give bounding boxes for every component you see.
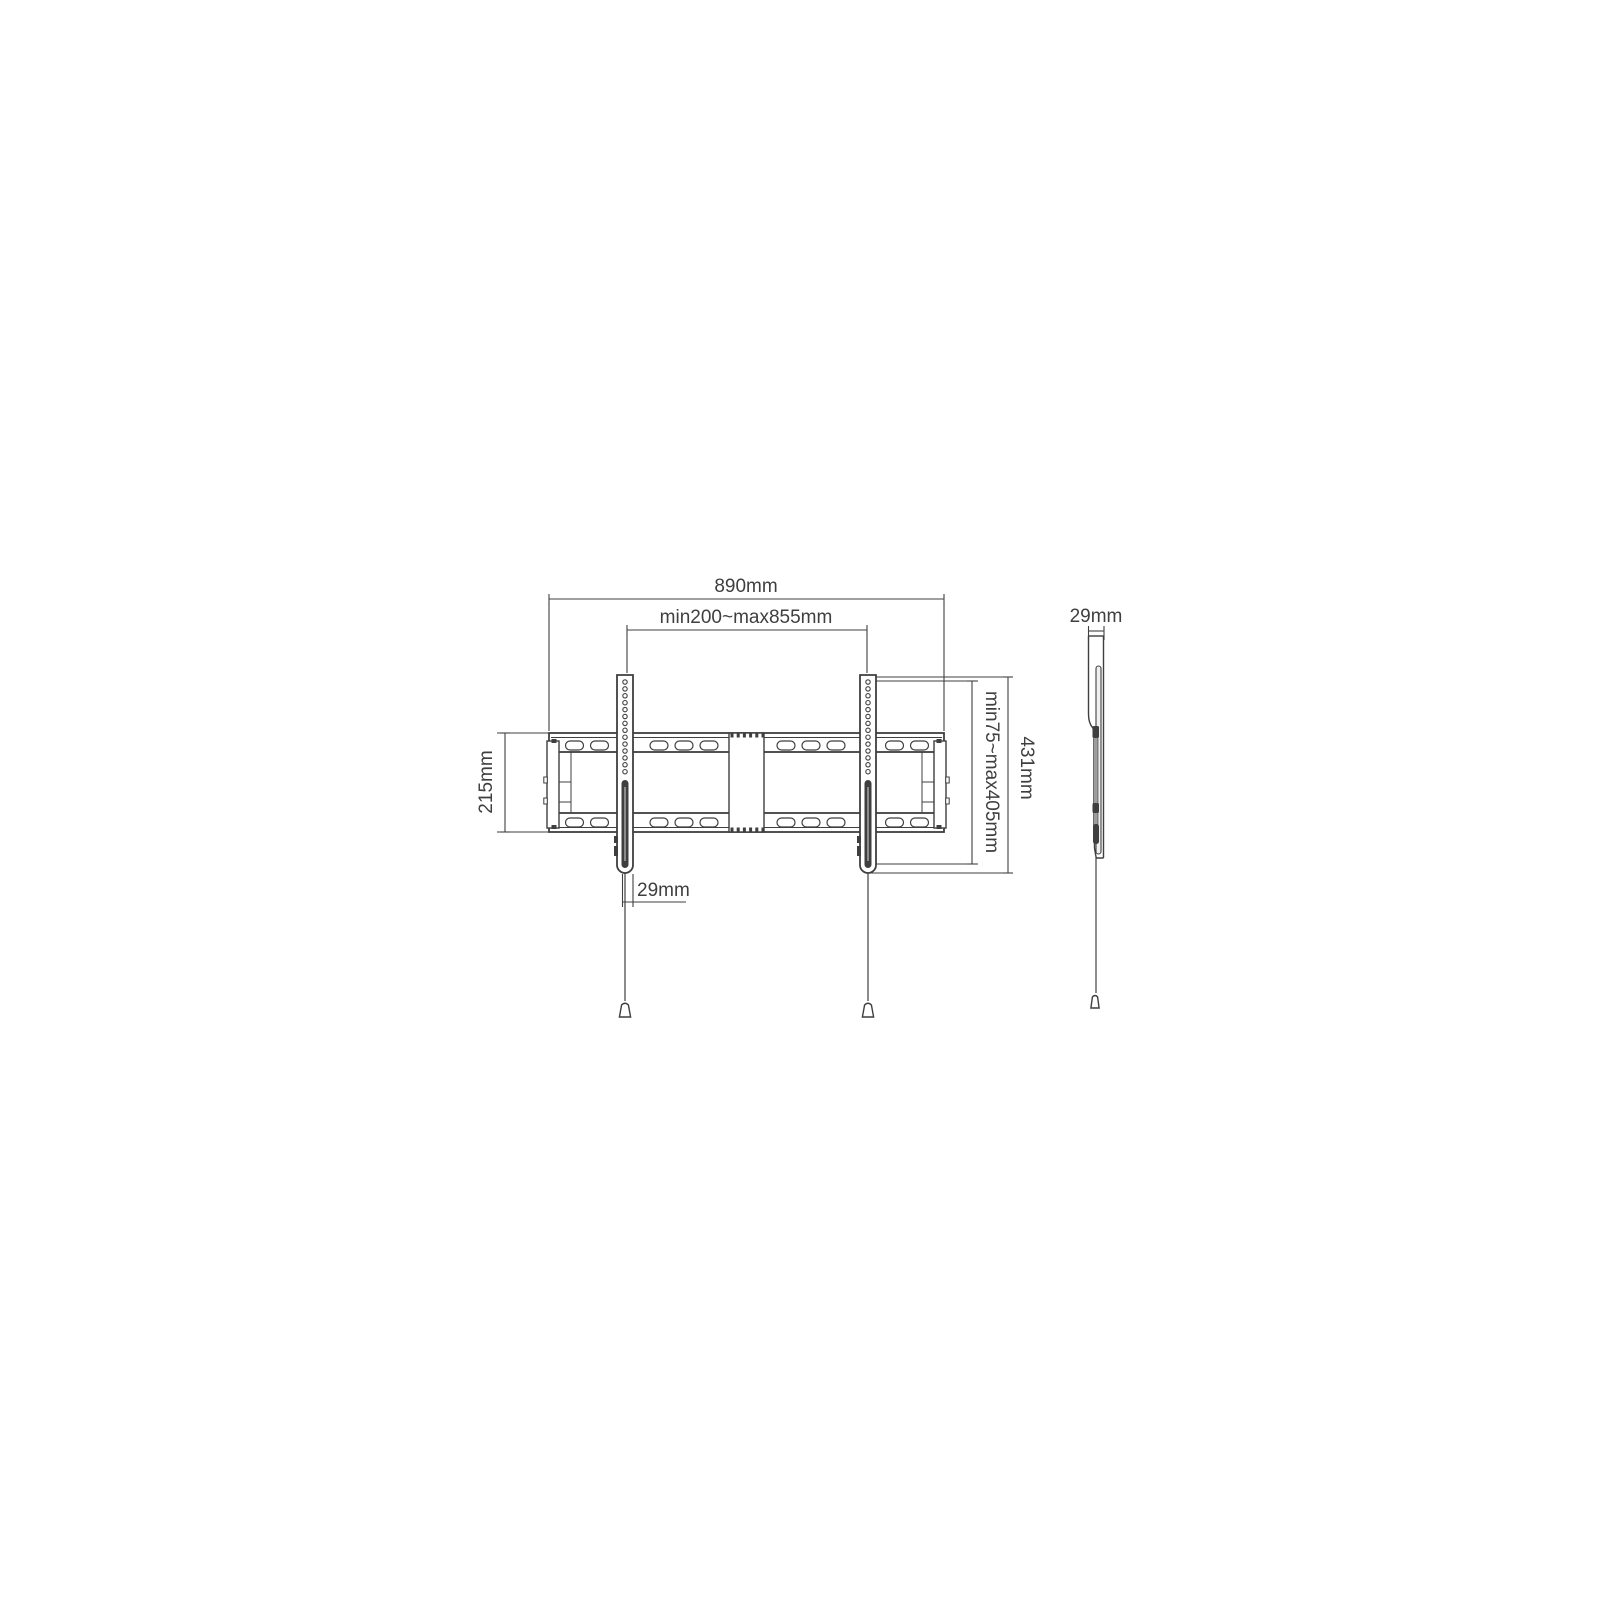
vesa-hole (866, 707, 870, 711)
end-cap-clip (946, 798, 950, 804)
end-cap-clip (544, 777, 548, 783)
right-pull-cord (862, 873, 873, 1017)
rail-slot (566, 818, 584, 827)
vesa-hole (623, 714, 627, 718)
latch-detail (1093, 824, 1099, 844)
rail-slot (911, 818, 929, 827)
plate-tooth (737, 828, 740, 833)
plate-tooth (737, 733, 740, 738)
dim-bracket-height-label: 431mm (1016, 736, 1037, 799)
dim-overall-width-label: 890mm (714, 576, 777, 597)
end-cap-body (547, 741, 559, 828)
vesa-hole (623, 694, 627, 698)
end-cap-notch (552, 825, 557, 829)
vesa-hole (866, 728, 870, 732)
end-cap-notch (937, 739, 942, 743)
rail-slot (591, 818, 609, 827)
latch-strip-profile (1094, 737, 1099, 832)
rail-slot (675, 741, 693, 750)
vesa-hole (623, 728, 627, 732)
dim-mount-width-range: min200~max855mm (627, 607, 867, 673)
vesa-hole (866, 756, 870, 760)
end-cap-notch (937, 825, 942, 829)
cord-handle (1091, 996, 1099, 1009)
side-view: 29mm (1070, 606, 1123, 1008)
side-pull-cord (1091, 858, 1099, 1008)
plate-tooth (755, 733, 758, 738)
vesa-hole (866, 721, 870, 725)
vesa-hole (623, 763, 627, 767)
vesa-hole (866, 742, 870, 746)
vesa-hole (623, 721, 627, 725)
latch-detail (857, 846, 861, 856)
latch-detail (1093, 726, 1100, 738)
vesa-hole (866, 714, 870, 718)
plate-tooth (749, 828, 752, 833)
cord-handle (862, 1003, 873, 1017)
latch-detail (614, 846, 618, 856)
left-vesa-bracket (614, 675, 633, 873)
vesa-hole (866, 749, 870, 753)
rail-slot (802, 818, 820, 827)
plate-tooth (755, 828, 758, 833)
end-cap-clip (544, 798, 548, 804)
dim-depth-label: 29mm (1070, 606, 1123, 627)
dim-rail-height-label: 215mm (476, 750, 497, 813)
vesa-hole (623, 735, 627, 739)
dim-rail-height: 215mm (476, 733, 553, 832)
tv-mount-dimension-drawing: 890mm min200~max855mm 215mm m (0, 0, 1600, 1600)
dim-bracket-height: 431mm (869, 677, 1037, 873)
rail-slot (827, 741, 845, 750)
vesa-hole (866, 694, 870, 698)
vesa-hole (866, 770, 870, 774)
latch-detail (1093, 803, 1100, 813)
rail-slot (886, 741, 904, 750)
plate-tooth (749, 733, 752, 738)
plate-tooth (743, 828, 746, 833)
vesa-hole (866, 701, 870, 705)
rail-slot (911, 741, 929, 750)
dim-bracket-width: 29mm (623, 874, 690, 907)
rail-slot (700, 741, 718, 750)
right-vesa-bracket (857, 675, 876, 873)
front-view: 890mm min200~max855mm 215mm m (476, 576, 1037, 1017)
side-profile (1089, 636, 1104, 858)
vesa-hole (623, 756, 627, 760)
plate-tooth (762, 828, 765, 833)
vesa-hole (623, 749, 627, 753)
dim-overall-width: 890mm (549, 576, 944, 731)
latch-detail (614, 836, 618, 843)
vesa-hole (866, 735, 870, 739)
vesa-hole (866, 680, 870, 684)
rail-slot (886, 818, 904, 827)
rail-slot (802, 741, 820, 750)
rail-slot (566, 741, 584, 750)
vesa-hole (623, 770, 627, 774)
rail-slot (777, 741, 795, 750)
vesa-hole (623, 742, 627, 746)
plate-tooth (731, 828, 734, 833)
end-cap-clip (946, 777, 950, 783)
plate-tooth (762, 733, 765, 738)
dim-depth: 29mm (1070, 606, 1123, 640)
vesa-hole (623, 680, 627, 684)
vesa-hole (866, 687, 870, 691)
latch-detail (857, 836, 861, 843)
rail-slot (591, 741, 609, 750)
rail-slot (700, 818, 718, 827)
dim-bracket-width-label: 29mm (637, 880, 690, 901)
rail-slot (675, 818, 693, 827)
plate-tooth (743, 733, 746, 738)
vesa-hole (866, 763, 870, 767)
dim-mount-width-range-label: min200~max855mm (660, 607, 833, 628)
end-cap-body (934, 741, 946, 828)
left-pull-cord (619, 873, 630, 1017)
vesa-hole (623, 687, 627, 691)
vesa-hole (623, 701, 627, 705)
plate-tooth (731, 733, 734, 738)
dim-mount-height-range-label: min75~max405mm (981, 691, 1002, 853)
rail-slot (777, 818, 795, 827)
vesa-hole (623, 707, 627, 711)
rail-slot (827, 818, 845, 827)
spacer-plate-body (729, 733, 764, 832)
cord-handle (619, 1003, 630, 1017)
drawing-canvas: 890mm min200~max855mm 215mm m (0, 0, 1600, 1600)
rail-slot (650, 818, 668, 827)
center-spacer-plate (729, 733, 765, 832)
rail-slot (650, 741, 668, 750)
end-cap-notch (552, 739, 557, 743)
